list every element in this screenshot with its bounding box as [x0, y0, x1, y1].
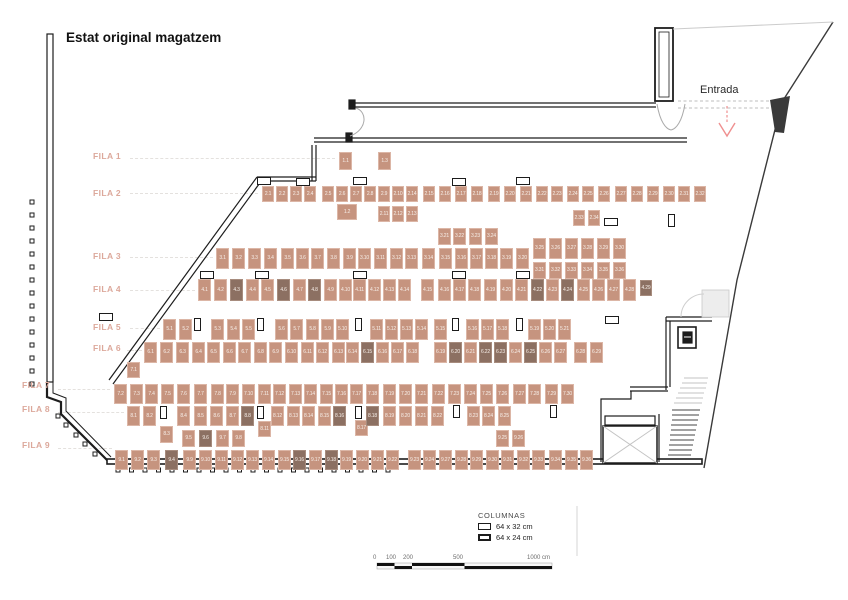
- storage-box-7.10: 7.10: [242, 384, 255, 404]
- storage-box-9.6: 9.6: [199, 430, 212, 447]
- storage-box-3.23: 3.23: [469, 228, 482, 245]
- storage-box-4.18: 4.18: [468, 279, 481, 301]
- column-64x32: [257, 177, 271, 185]
- entrance-label: Entrada: [700, 84, 739, 96]
- column-64x32: [353, 271, 367, 279]
- storage-box-3.20: 3.20: [516, 248, 529, 269]
- storage-box-9.31: 9.31: [501, 450, 514, 470]
- storage-box-9.5: 9.5: [182, 430, 195, 447]
- column-64x32: [452, 271, 466, 279]
- scale-label: 200: [403, 555, 413, 561]
- storage-box-6.11: 6.11: [301, 342, 314, 363]
- column-64x32: [516, 271, 530, 279]
- storage-box-3.29: 3.29: [597, 238, 610, 259]
- storage-box-9.2: 9.2: [131, 450, 144, 470]
- storage-box-7.14: 7.14: [304, 384, 317, 404]
- column-64x24: [355, 318, 362, 331]
- storage-box-7.11: 7.11: [258, 384, 271, 404]
- row-label-8: FILA 8: [22, 404, 50, 414]
- storage-box-3.4: 3.4: [264, 248, 277, 269]
- storage-box-7.17: 7.17: [350, 384, 363, 404]
- storage-box-9.27: 9.27: [439, 450, 452, 470]
- storage-box-7.4: 7.4: [145, 384, 158, 404]
- storage-box-4.2: 4.2: [214, 279, 227, 301]
- storage-box-6.25: 6.25: [524, 342, 537, 363]
- storage-box-9.26: 9.26: [512, 430, 525, 447]
- storage-box-4.20: 4.20: [500, 279, 513, 301]
- storage-box-9.10: 9.10: [199, 450, 212, 470]
- storage-box-7.1: 7.1: [127, 362, 140, 378]
- storage-box-3.9: 3.9: [343, 248, 356, 269]
- storage-box-6.17: 6.17: [391, 342, 404, 363]
- storage-box-2.23: 2.23: [551, 186, 563, 202]
- storage-box-5.19: 5.19: [528, 319, 541, 340]
- column-64x24: [668, 214, 675, 227]
- column-64x24: [516, 318, 523, 331]
- storage-box-3.35: 3.35: [597, 262, 610, 279]
- storage-box-4.29: 4.29: [640, 280, 652, 296]
- storage-box-7.15: 7.15: [320, 384, 333, 404]
- storage-box-9.28: 9.28: [455, 450, 468, 470]
- storage-box-7.6: 7.6: [177, 384, 190, 404]
- entrance-threshold: [678, 101, 770, 108]
- storage-box-2.7: 2.7: [350, 186, 362, 202]
- storage-box-8.1: 8.1: [127, 406, 140, 426]
- storage-box-3.1: 3.1: [216, 248, 229, 269]
- storage-box-2.29: 2.29: [647, 186, 659, 202]
- storage-box-3.6: 3.6: [296, 248, 309, 269]
- row-label-3: FILA 3: [93, 251, 121, 261]
- top-right-shaft: [655, 28, 673, 101]
- storage-box-8.7: 8.7: [226, 406, 239, 426]
- door-swing-left: [657, 104, 671, 130]
- column-64x32: [296, 178, 310, 186]
- storage-box-6.18: 6.18: [406, 342, 419, 363]
- storage-box-7.25: 7.25: [480, 384, 493, 404]
- page-title: Estat original magatzem: [66, 30, 221, 45]
- storage-box-2.25: 2.25: [582, 186, 594, 202]
- storage-box-8.6: 8.6: [210, 406, 223, 426]
- storage-box-4.25: 4.25: [577, 279, 590, 301]
- column-64x32: [452, 178, 466, 186]
- storage-box-9.4: 9.4: [165, 450, 178, 470]
- storage-box-3.10: 3.10: [358, 248, 371, 269]
- storage-box-4.15: 4.15: [421, 279, 434, 301]
- storage-box-3.24: 3.24: [485, 228, 498, 245]
- column-64x32: [605, 316, 619, 324]
- storage-box-6.19: 6.19: [434, 342, 447, 363]
- storage-box-2.10: 2.10: [392, 186, 404, 202]
- storage-box-7.3: 7.3: [130, 384, 143, 404]
- storage-box-5.12: 5.12: [385, 319, 398, 340]
- storage-box-8.19: 8.19: [383, 406, 396, 426]
- storage-box-8.15: 8.15: [318, 406, 331, 426]
- storage-box-3.28: 3.28: [581, 238, 594, 259]
- storage-box-9.23: 9.23: [408, 450, 421, 470]
- storage-box-4.21: 4.21: [515, 279, 528, 301]
- storage-box-9.36: 9.36: [580, 450, 593, 470]
- column-64x24: [257, 318, 264, 331]
- column-64x32: [604, 218, 618, 226]
- storage-box-3.30: 3.30: [613, 238, 626, 259]
- storage-box-6.4: 6.4: [192, 342, 205, 363]
- storage-box-5.16: 5.16: [466, 319, 479, 340]
- column-64x24: [452, 318, 459, 331]
- storage-box-2.19: 2.19: [488, 186, 500, 202]
- storage-box-4.13: 4.13: [383, 279, 396, 301]
- storage-box-3.17: 3.17: [470, 248, 483, 269]
- storage-box-5.2: 5.2: [179, 319, 192, 340]
- storage-box-6.28: 6.28: [574, 342, 587, 363]
- storage-box-9.9: 9.9: [183, 450, 196, 470]
- storage-box-7.28: 7.28: [528, 384, 541, 404]
- storage-box-6.6: 6.6: [223, 342, 236, 363]
- column-icon-64x32: [478, 523, 491, 530]
- storage-box-6.16: 6.16: [376, 342, 389, 363]
- stairs-lower: [668, 410, 700, 455]
- entrance-arrow-icon: [719, 106, 735, 136]
- legend-item: 64 x 32 cm: [478, 522, 533, 531]
- scale-label: 100: [386, 555, 396, 561]
- storage-box-6.7: 6.7: [238, 342, 251, 363]
- storage-box-3.8: 3.8: [327, 248, 340, 269]
- column-64x32: [99, 313, 113, 321]
- storage-box-5.8: 5.8: [306, 319, 319, 340]
- storage-box-4.23: 4.23: [546, 279, 559, 301]
- storage-box-3.25: 3.25: [533, 238, 546, 259]
- storage-box-8.20: 8.20: [399, 406, 412, 426]
- storage-box-3.3: 3.3: [248, 248, 261, 269]
- storage-box-8.18: 8.18: [366, 406, 379, 426]
- storage-box-6.24: 6.24: [509, 342, 522, 363]
- storage-box-6.1: 6.1: [144, 342, 157, 363]
- storage-box-5.17: 5.17: [481, 319, 494, 340]
- storage-box-3.21: 3.21: [438, 228, 451, 245]
- storage-box-7.18: 7.18: [366, 384, 379, 404]
- storage-box-7.22: 7.22: [432, 384, 445, 404]
- storage-box-4.26: 4.26: [592, 279, 605, 301]
- storage-box-7.20: 7.20: [399, 384, 412, 404]
- floor-plan: Estat original magatzem Entrada 1.11.21.…: [0, 0, 848, 600]
- storage-box-2.22: 2.22: [536, 186, 548, 202]
- storage-box-5.10: 5.10: [336, 319, 349, 340]
- scale-label: 0: [373, 555, 376, 561]
- storage-box-2.15: 2.15: [423, 186, 435, 202]
- storage-box-3.26: 3.26: [549, 238, 562, 259]
- storage-box-4.27: 4.27: [607, 279, 620, 301]
- column-64x32: [516, 177, 530, 185]
- storage-box-2.8: 2.8: [364, 186, 376, 202]
- storage-box-4.4: 4.4: [246, 279, 259, 301]
- scale-bar: [377, 563, 552, 569]
- storage-box-3.36: 3.36: [613, 262, 626, 279]
- stairs-upper: [674, 378, 708, 403]
- storage-box-9.1: 9.1: [115, 450, 128, 470]
- storage-box-7.21: 7.21: [415, 384, 428, 404]
- storage-box-3.16: 3.16: [455, 248, 468, 269]
- storage-box-6.23: 6.23: [494, 342, 507, 363]
- storage-box-5.6: 5.6: [275, 319, 288, 340]
- storage-box-2.4: 2.4: [304, 186, 316, 202]
- row-label-6: FILA 6: [93, 343, 121, 353]
- storage-box-9.35: 9.35: [565, 450, 578, 470]
- storage-box-5.13: 5.13: [400, 319, 413, 340]
- storage-box-2.26: 2.26: [598, 186, 610, 202]
- row-label-4: FILA 4: [93, 284, 121, 294]
- row-label-1: FILA 1: [93, 151, 121, 161]
- storage-box-7.30: 7.30: [561, 384, 574, 404]
- storage-box-7.29: 7.29: [545, 384, 558, 404]
- storage-box-8.24: 8.24: [482, 406, 495, 426]
- column-64x32: [353, 177, 367, 185]
- storage-box-2.16: 2.16: [439, 186, 451, 202]
- storage-box-8.16: 8.16: [333, 406, 346, 426]
- storage-box-3.2: 3.2: [232, 248, 245, 269]
- storage-box-9.33: 9.33: [532, 450, 545, 470]
- storage-box-7.13: 7.13: [289, 384, 302, 404]
- storage-box-3.7: 3.7: [311, 248, 324, 269]
- storage-box-9.34: 9.34: [549, 450, 562, 470]
- storage-box-3.5: 3.5: [281, 248, 294, 269]
- storage-box-4.10: 4.10: [339, 279, 352, 301]
- storage-box-7.16: 7.16: [335, 384, 348, 404]
- storage-box-7.12: 7.12: [273, 384, 286, 404]
- storage-box-5.20: 5.20: [543, 319, 556, 340]
- storage-box-3.11: 3.11: [374, 248, 387, 269]
- storage-box-9.25: 9.25: [496, 430, 509, 447]
- storage-box-9.8: 9.8: [232, 430, 245, 447]
- scale-label: 1000 cm: [527, 555, 550, 561]
- legend-item-label: 64 x 32 cm: [496, 522, 533, 531]
- legend-item-label: 64 x 24 cm: [496, 533, 533, 542]
- storage-box-3.31: 3.31: [533, 262, 546, 279]
- storage-box-9.32: 9.32: [517, 450, 530, 470]
- storage-box-4.7: 4.7: [293, 279, 306, 301]
- storage-box-2.18: 2.18: [471, 186, 483, 202]
- storage-box-9.17: 9.17: [309, 450, 322, 470]
- storage-box-7.27: 7.27: [513, 384, 526, 404]
- storage-box-4.24: 4.24: [561, 279, 574, 301]
- storage-box-2.34: 2.34: [588, 210, 600, 226]
- storage-box-9.3: 9.3: [147, 450, 160, 470]
- storage-box-6.21: 6.21: [464, 342, 477, 363]
- row-label-5: FILA 5: [93, 322, 121, 332]
- storage-box-6.22: 6.22: [479, 342, 492, 363]
- storage-box-2.6: 2.6: [336, 186, 348, 202]
- storage-box-2.21: 2.21: [520, 186, 532, 202]
- row-label-7: FILA 7: [22, 380, 50, 390]
- left-wall: [47, 34, 53, 382]
- storage-box-8.2: 8.2: [143, 406, 156, 426]
- storage-box-8.25: 8.25: [498, 406, 511, 426]
- storage-box-9.13: 9.13: [246, 450, 259, 470]
- storage-box-2.24: 2.24: [567, 186, 579, 202]
- storage-box-3.33: 3.33: [565, 262, 578, 279]
- storage-box-2.20: 2.20: [504, 186, 516, 202]
- storage-box-4.1: 4.1: [198, 279, 211, 301]
- storage-box-1.3: 1.3: [378, 152, 391, 170]
- storage-box-3.14: 3.14: [422, 248, 435, 269]
- storage-box-4.6: 4.6: [277, 279, 290, 301]
- storage-box-2.14: 2.14: [406, 186, 418, 202]
- storage-box-5.14: 5.14: [415, 319, 428, 340]
- storage-box-6.27: 6.27: [554, 342, 567, 363]
- storage-box-8.23: 8.23: [467, 406, 480, 426]
- storage-box-7.26: 7.26: [496, 384, 509, 404]
- row-label-9: FILA 9: [22, 440, 50, 450]
- column-64x24: [550, 405, 557, 418]
- storage-box-3.18: 3.18: [485, 248, 498, 269]
- legend-item: 64 x 24 cm: [478, 533, 533, 542]
- storage-box-2.5: 2.5: [322, 186, 334, 202]
- storage-box-9.29: 9.29: [470, 450, 483, 470]
- storage-box-8.8: 8.8: [241, 406, 254, 426]
- column-64x32: [200, 271, 214, 279]
- storage-box-9.20: 9.20: [356, 450, 369, 470]
- column-64x32: [255, 271, 269, 279]
- storage-box-2.1: 2.1: [262, 186, 274, 202]
- storage-box-1.1: 1.1: [339, 152, 352, 170]
- storage-box-9.18: 9.18: [325, 450, 338, 470]
- storage-box-4.11: 4.11: [353, 279, 366, 301]
- storage-box-9.14: 9.14: [262, 450, 275, 470]
- storage-box-6.2: 6.2: [160, 342, 173, 363]
- storage-box-6.15: 6.15: [361, 342, 374, 363]
- storage-box-9.22: 9.22: [386, 450, 399, 470]
- storage-box-2.2: 2.2: [276, 186, 288, 202]
- column-64x24: [160, 406, 167, 419]
- storage-box-3.34: 3.34: [581, 262, 594, 279]
- storage-box-4.16: 4.16: [438, 279, 451, 301]
- storage-box-9.21: 9.21: [371, 450, 384, 470]
- storage-box-6.20: 6.20: [449, 342, 462, 363]
- storage-box-5.11: 5.11: [370, 319, 383, 340]
- storage-box-8.11: 8.11: [258, 421, 271, 437]
- storage-box-2.13: 2.13: [406, 206, 418, 222]
- storage-box-4.9: 4.9: [324, 279, 337, 301]
- storage-box-5.9: 5.9: [321, 319, 334, 340]
- storage-box-9.12: 9.12: [231, 450, 244, 470]
- storage-box-7.19: 7.19: [383, 384, 396, 404]
- storage-box-4.17: 4.17: [453, 279, 466, 301]
- storage-box-4.28: 4.28: [623, 279, 636, 301]
- storage-box-8.22: 8.22: [431, 406, 444, 426]
- storage-box-7.2: 7.2: [114, 384, 127, 404]
- storage-box-6.14: 6.14: [346, 342, 359, 363]
- storage-box-9.7: 9.7: [216, 430, 229, 447]
- storage-box-3.27: 3.27: [565, 238, 578, 259]
- storage-box-4.8: 4.8: [308, 279, 321, 301]
- storage-box-9.15: 9.15: [278, 450, 291, 470]
- storage-box-8.21: 8.21: [415, 406, 428, 426]
- storage-box-3.12: 3.12: [390, 248, 403, 269]
- storage-box-5.3: 5.3: [211, 319, 224, 340]
- storage-box-2.30: 2.30: [663, 186, 675, 202]
- storage-box-7.5: 7.5: [161, 384, 174, 404]
- storage-box-9.16: 9.16: [293, 450, 306, 470]
- storage-box-9.24: 9.24: [423, 450, 436, 470]
- storage-box-1.2: 1.2: [337, 204, 357, 220]
- column-icon-64x24: [478, 534, 491, 541]
- storage-box-3.32: 3.32: [549, 262, 562, 279]
- storage-box-2.9: 2.9: [378, 186, 390, 202]
- storage-box-6.10: 6.10: [285, 342, 298, 363]
- storage-box-6.29: 6.29: [590, 342, 603, 363]
- column-64x24: [194, 318, 201, 331]
- storage-box-8.4: 8.4: [177, 406, 190, 426]
- storage-box-5.5: 5.5: [242, 319, 255, 340]
- storage-box-4.12: 4.12: [368, 279, 381, 301]
- storage-box-7.9: 7.9: [226, 384, 239, 404]
- storage-box-7.23: 7.23: [448, 384, 461, 404]
- storage-box-4.19: 4.19: [484, 279, 497, 301]
- storage-box-2.33: 2.33: [573, 210, 585, 226]
- storage-box-4.5: 4.5: [261, 279, 274, 301]
- storage-box-5.15: 5.15: [434, 319, 447, 340]
- storage-box-6.5: 6.5: [207, 342, 220, 363]
- storage-box-6.12: 6.12: [316, 342, 329, 363]
- storage-box-9.19: 9.19: [340, 450, 353, 470]
- storage-box-2.12: 2.12: [392, 206, 404, 222]
- storage-box-7.7: 7.7: [194, 384, 207, 404]
- column-64x24: [257, 406, 264, 419]
- storage-box-8.5: 8.5: [194, 406, 207, 426]
- storage-box-4.3: 4.3: [230, 279, 243, 301]
- storage-box-4.22: 4.22: [531, 279, 544, 301]
- storage-box-8.13: 8.13: [287, 406, 300, 426]
- storage-box-2.11: 2.11: [378, 206, 390, 222]
- storage-box-5.4: 5.4: [227, 319, 240, 340]
- storage-box-5.1: 5.1: [163, 319, 176, 340]
- storage-box-6.13: 6.13: [332, 342, 345, 363]
- storage-box-2.28: 2.28: [631, 186, 643, 202]
- row-label-2: FILA 2: [93, 188, 121, 198]
- column-64x24: [355, 406, 362, 419]
- storage-box-9.11: 9.11: [215, 450, 228, 470]
- storage-box-2.31: 2.31: [678, 186, 690, 202]
- door-swing-top: [350, 108, 364, 136]
- storage-box-6.3: 6.3: [176, 342, 189, 363]
- column-64x24: [453, 405, 460, 418]
- storage-box-2.27: 2.27: [615, 186, 627, 202]
- storage-box-6.9: 6.9: [269, 342, 282, 363]
- storage-box-5.7: 5.7: [290, 319, 303, 340]
- storage-box-3.13: 3.13: [405, 248, 418, 269]
- storage-box-7.24: 7.24: [464, 384, 477, 404]
- scale-label: 500: [453, 555, 463, 561]
- storage-box-6.26: 6.26: [539, 342, 552, 363]
- storage-box-5.21: 5.21: [558, 319, 571, 340]
- storage-box-3.19: 3.19: [500, 248, 513, 269]
- storage-box-8.3: 8.3: [160, 426, 173, 443]
- storage-box-2.3: 2.3: [290, 186, 302, 202]
- storage-box-5.18: 5.18: [496, 319, 509, 340]
- storage-box-7.8: 7.8: [211, 384, 224, 404]
- storage-box-9.30: 9.30: [486, 450, 499, 470]
- storage-box-2.17: 2.17: [455, 186, 467, 202]
- storage-box-2.32: 2.32: [694, 186, 706, 202]
- storage-box-3.15: 3.15: [439, 248, 452, 269]
- storage-box-3.22: 3.22: [453, 228, 466, 245]
- legend: COLUMNAS 64 x 32 cm 64 x 24 cm: [478, 511, 533, 542]
- legend-title: COLUMNAS: [478, 511, 533, 520]
- storage-box-8.14: 8.14: [302, 406, 315, 426]
- storage-box-8.12: 8.12: [271, 406, 284, 426]
- storage-box-6.8: 6.8: [254, 342, 267, 363]
- storage-box-4.14: 4.14: [398, 279, 411, 301]
